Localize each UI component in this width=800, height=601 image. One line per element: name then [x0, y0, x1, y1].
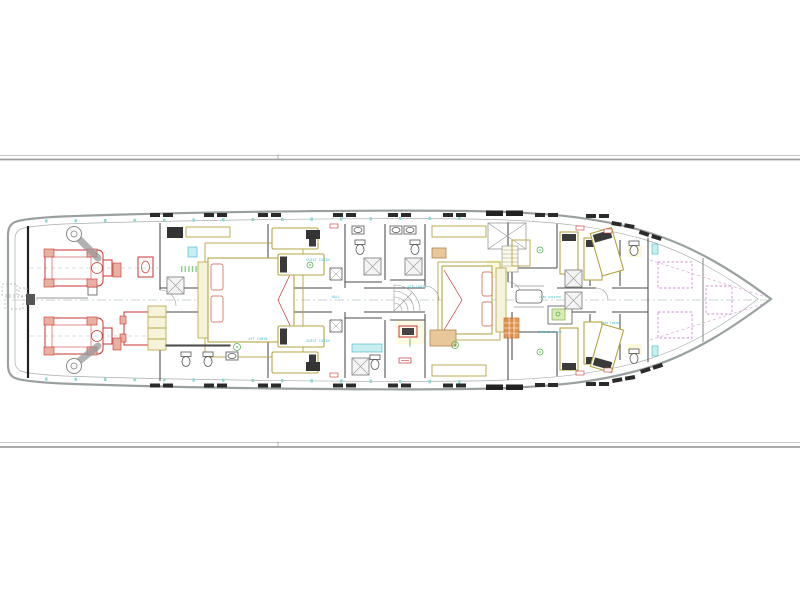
- ga-drawing-sheet: AFT CABIN GUEST CABIN GUEST CABIN HALL V…: [0, 0, 800, 601]
- captain-cabin-label: CAPTAIN CABIN: [538, 330, 562, 334]
- deck-plan-svg: AFT CABIN GUEST CABIN GUEST CABIN HALL V…: [0, 0, 800, 601]
- aft-cabin-label: AFT CABIN: [248, 337, 267, 341]
- crew-quarter-label: CREW QUARTER: [539, 295, 561, 299]
- guest-cabin-bottom-label: GUEST CABIN: [306, 339, 329, 343]
- laundry-label: LAUNDRY: [408, 337, 412, 348]
- hall-label: HALL: [332, 295, 340, 299]
- vip-cabin-label: VIP CABIN: [407, 285, 426, 289]
- crew-cabin-label: CREW CABIN: [601, 321, 619, 325]
- guest-cabin-top-label: GUEST CABIN: [306, 258, 329, 262]
